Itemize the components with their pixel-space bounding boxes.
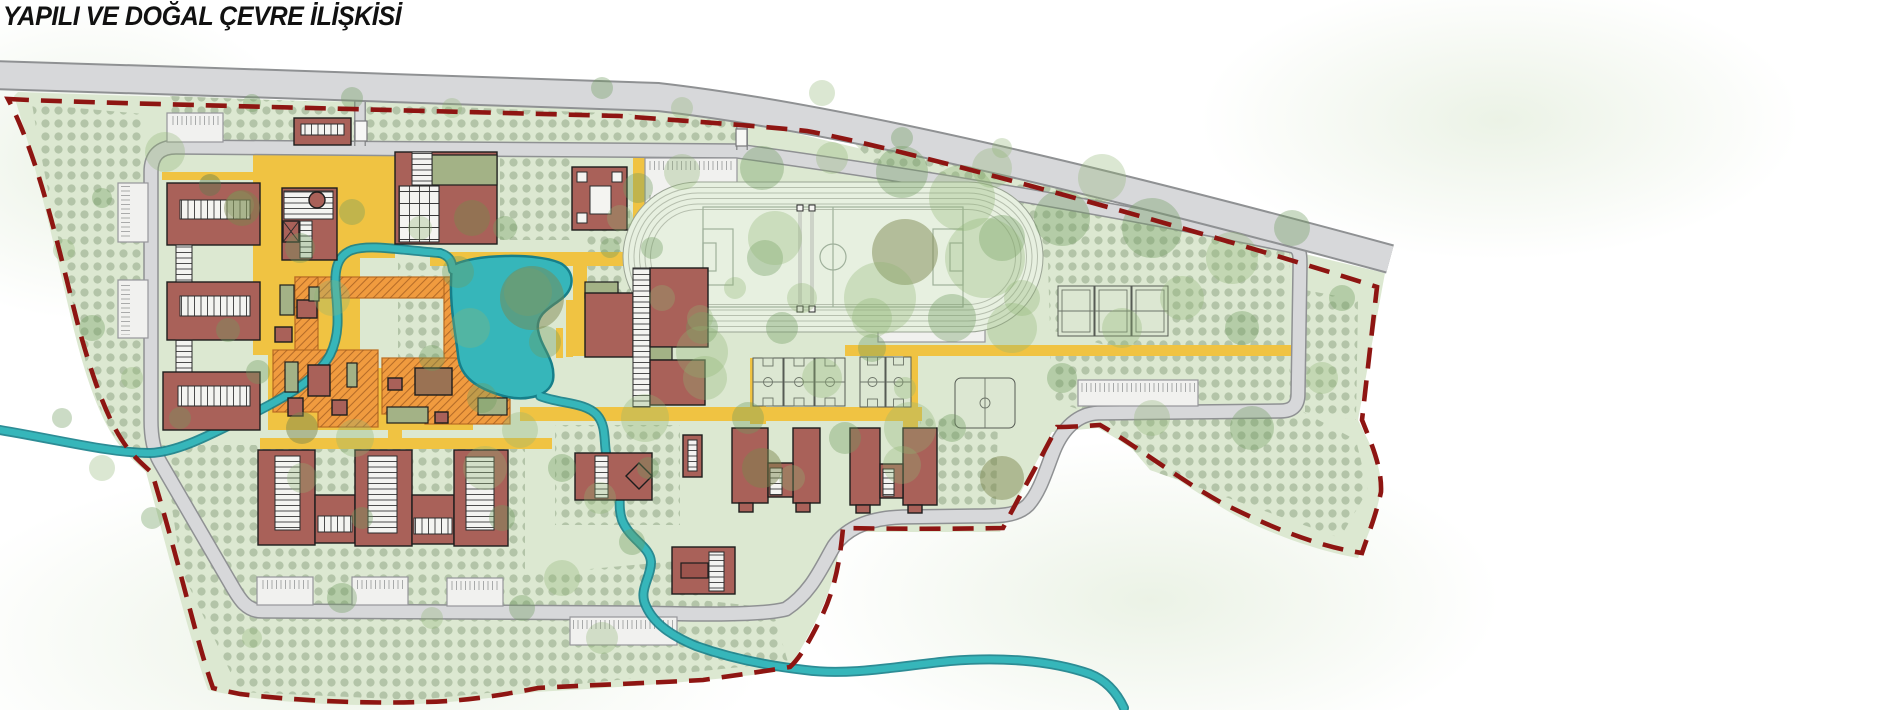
- campus-master-plan-map: [0, 0, 1894, 710]
- site-plan-canvas: YAPILI VE DOĞAL ÇEVRE İLİŞKİSİ: [0, 0, 1894, 710]
- page-title: YAPILI VE DOĞAL ÇEVRE İLİŞKİSİ: [3, 1, 401, 32]
